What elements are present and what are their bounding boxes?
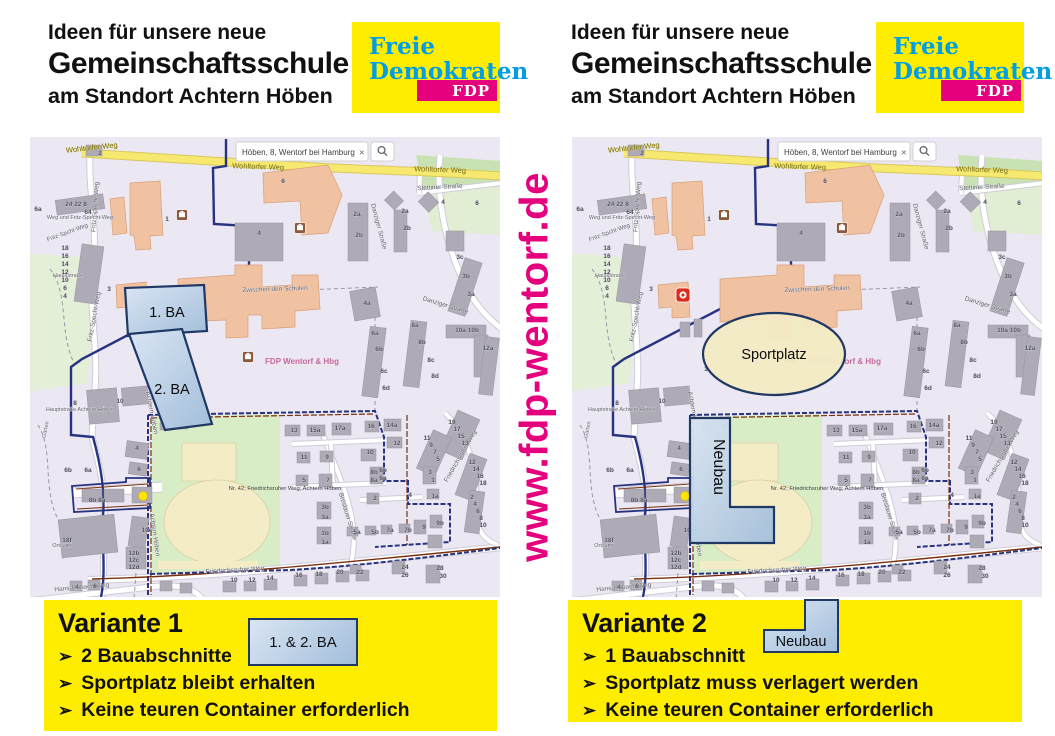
svg-text:8d: 8d	[431, 373, 439, 380]
svg-text:15: 15	[999, 433, 1007, 440]
svg-text:9: 9	[867, 454, 871, 461]
svg-text:9: 9	[971, 442, 975, 449]
svg-text:3: 3	[107, 286, 111, 293]
svg-text:6: 6	[1018, 508, 1022, 515]
svg-text:5b: 5b	[913, 529, 921, 536]
svg-text:12a: 12a	[483, 345, 494, 352]
svg-text:16: 16	[603, 253, 611, 260]
svg-text:3: 3	[970, 469, 974, 476]
website-url: www.fdp-wentorf.de	[513, 172, 558, 562]
svg-text:7: 7	[975, 449, 979, 456]
svg-text:13: 13	[832, 427, 840, 434]
svg-text:4: 4	[950, 492, 954, 499]
ba2-label: 2. BA	[154, 382, 190, 398]
svg-text:2a: 2a	[895, 211, 903, 218]
svg-text:1: 1	[431, 477, 435, 484]
svg-text:9: 9	[422, 524, 426, 531]
search-button[interactable]	[371, 142, 394, 161]
bullet-item: ➢Keine teuren Container erforderlich	[58, 697, 497, 724]
svg-text:6a: 6a	[913, 330, 921, 337]
svg-text:8a: 8a	[953, 322, 961, 329]
svg-text:1a: 1a	[321, 539, 329, 546]
svg-text:4a: 4a	[905, 300, 913, 307]
svg-text:8: 8	[615, 400, 619, 407]
svg-text:8b: 8b	[960, 339, 968, 346]
svg-text:6: 6	[823, 178, 827, 185]
svg-text:5b: 5b	[371, 529, 379, 536]
svg-text:8d: 8d	[973, 373, 981, 380]
svg-text:6: 6	[605, 285, 609, 292]
svg-text:4: 4	[257, 230, 261, 237]
svg-text:10a 10b: 10a 10b	[997, 327, 1021, 334]
svg-text:13: 13	[461, 440, 469, 447]
svg-text:Hauptstraße Achtern Höben: Hauptstraße Achtern Höben	[588, 407, 656, 413]
svg-text:6: 6	[476, 508, 480, 515]
school-icon	[837, 223, 848, 234]
variant2-box: Variante 2 ➢1 Bauabschnitt➢Sportplatz mu…	[568, 600, 1022, 722]
svg-text:10a 10b: 10a 10b	[455, 327, 479, 334]
svg-text:8a: 8a	[411, 322, 419, 329]
svg-text:19: 19	[990, 419, 998, 426]
svg-text:15a: 15a	[310, 427, 321, 434]
overlay-sportplatz: Sportplatz	[703, 313, 845, 395]
svg-text:28: 28	[978, 565, 986, 572]
svg-text:22: 22	[356, 569, 364, 576]
search-clear-icon[interactable]: ×	[901, 148, 907, 159]
svg-text:1a: 1a	[863, 539, 871, 546]
svg-text:14: 14	[603, 261, 611, 268]
svg-text:12b: 12b	[128, 550, 139, 557]
svg-text:2b: 2b	[897, 232, 905, 239]
svg-text:4: 4	[63, 293, 67, 300]
variant1-box: Variante 1 ➢2 Bauabschnitte➢Sportplatz b…	[44, 600, 497, 731]
svg-text:10: 10	[366, 449, 374, 456]
svg-text:3b: 3b	[321, 504, 329, 511]
svg-text:6: 6	[475, 200, 479, 207]
marker-dot	[139, 492, 148, 501]
svg-text:10: 10	[658, 398, 666, 405]
variant2-legend: Neubau	[762, 598, 842, 656]
svg-text:12c: 12c	[671, 557, 682, 564]
svg-text:1a: 1a	[973, 493, 981, 500]
svg-text:5a: 5a	[895, 529, 903, 536]
svg-text:4: 4	[677, 445, 681, 452]
svg-text:4: 4	[605, 293, 609, 300]
header-line2: Gemeinschaftsschule	[48, 47, 349, 81]
svg-text:6b: 6b	[606, 467, 614, 474]
bullet-arrow-icon: ➢	[58, 701, 72, 720]
svg-text:5: 5	[436, 456, 440, 463]
svg-text:6a: 6a	[84, 467, 92, 474]
overlay-ba1: 1. BA	[125, 285, 207, 336]
bullet-text: 2 Bauabschnitte	[81, 645, 232, 667]
svg-text:1a: 1a	[431, 493, 439, 500]
bullet-item: ➢Keine teuren Container erforderlich	[582, 697, 1022, 724]
svg-text:13: 13	[290, 427, 298, 434]
svg-text:4: 4	[983, 199, 987, 206]
svg-text:12: 12	[393, 440, 401, 447]
svg-text:10: 10	[230, 577, 238, 584]
poi-red-icon	[676, 288, 690, 302]
svg-text:8a: 8a	[912, 477, 920, 484]
svg-text:6: 6	[1017, 200, 1021, 207]
school-icon	[177, 210, 188, 221]
svg-text:18: 18	[857, 571, 865, 578]
svg-text:2a: 2a	[943, 208, 951, 215]
svg-text:2: 2	[373, 495, 377, 502]
svg-text:12d: 12d	[128, 564, 139, 571]
svg-text:12: 12	[603, 269, 611, 276]
svg-text:18: 18	[479, 480, 487, 487]
svg-text:18f: 18f	[62, 537, 72, 544]
svg-text:5a: 5a	[353, 529, 361, 536]
svg-text:4: 4	[473, 501, 477, 508]
svg-text:64: 64	[626, 209, 634, 216]
svg-text:18: 18	[603, 245, 611, 252]
svg-text:6c: 6c	[380, 368, 388, 375]
svg-text:26: 26	[401, 572, 409, 579]
svg-text:6a: 6a	[379, 475, 387, 482]
svg-text:12: 12	[790, 577, 798, 584]
svg-text:6c: 6c	[922, 368, 930, 375]
svg-text:4: 4	[1015, 501, 1019, 508]
svg-text:6b: 6b	[379, 467, 387, 474]
svg-text:3c: 3c	[456, 254, 464, 261]
svg-text:Wohltorfer Weg: Wohltorfer Weg	[232, 161, 284, 172]
map-variant-2: Wohltorfer WegWohltorfer WegWohltorfer W…	[572, 137, 1042, 597]
map-variant-1: Wohltorfer WegWohltorfer WegWohltorfer W…	[30, 137, 500, 597]
school-icon	[295, 223, 306, 234]
bullet-text: Keine teuren Container erforderlich	[81, 699, 409, 721]
svg-text:9: 9	[964, 524, 968, 531]
variant1-legend: 1. & 2. BA	[248, 618, 358, 666]
svg-text:Nr. 42; Friedrichsruher Weg; A: Nr. 42; Friedrichsruher Weg; Achtern Höb…	[771, 486, 884, 492]
fdp-badge: FDP	[941, 80, 1021, 101]
svg-text:7a: 7a	[928, 527, 936, 534]
svg-text:FDP Wentorf & Hbg: FDP Wentorf & Hbg	[265, 357, 339, 366]
svg-text:18: 18	[61, 245, 69, 252]
svg-text:6a: 6a	[371, 330, 379, 337]
svg-text:6: 6	[137, 466, 141, 473]
svg-text:4: 4	[408, 492, 412, 499]
svg-text:6a: 6a	[576, 206, 584, 213]
svg-text:2: 2	[98, 150, 102, 157]
svg-text:16: 16	[61, 253, 69, 260]
svg-text:4: 4	[135, 445, 139, 452]
svg-text:7: 7	[326, 477, 330, 484]
svg-text:2a: 2a	[353, 211, 361, 218]
bullet-item: ➢Sportplatz muss verlagert werden	[582, 670, 1022, 697]
svg-text:10: 10	[772, 577, 780, 584]
svg-text:3b: 3b	[863, 504, 871, 511]
svg-text:15a: 15a	[852, 427, 863, 434]
search-value: Höben, 8, Wentorf bei Hamburg	[242, 148, 355, 157]
svg-text:12a: 12a	[1025, 345, 1036, 352]
svg-text:16: 16	[367, 423, 375, 430]
fdp-logo-wordmark: Freie Demokraten	[893, 34, 1052, 84]
svg-text:3a: 3a	[1009, 291, 1017, 298]
svg-text:17a: 17a	[877, 425, 888, 432]
svg-text:5: 5	[844, 477, 848, 484]
svg-text:7: 7	[868, 477, 872, 484]
svg-text:10: 10	[908, 449, 916, 456]
svg-text:8c: 8c	[427, 357, 435, 364]
svg-text:18f: 18f	[604, 537, 614, 544]
svg-text:7b: 7b	[404, 527, 412, 534]
website-vertical: www.fdp-wentorf.de	[501, 137, 569, 597]
svg-text:10: 10	[116, 398, 124, 405]
svg-text:12: 12	[61, 269, 69, 276]
svg-text:24: 24	[943, 564, 951, 571]
fdp-badge: FDP	[417, 80, 497, 101]
bullet-arrow-icon: ➢	[582, 647, 596, 666]
svg-text:16: 16	[909, 423, 917, 430]
svg-text:12c: 12c	[129, 557, 140, 564]
flyer-page: Ideen für unsere neue Gemeinschaftsschul…	[0, 0, 1055, 736]
svg-text:6a: 6a	[921, 475, 929, 482]
svg-text:8: 8	[73, 400, 77, 407]
svg-text:4: 4	[75, 584, 79, 591]
svg-text:Weg und Fritz-Specht-Weg: Weg und Fritz-Specht-Weg	[589, 215, 655, 221]
svg-text:3: 3	[428, 469, 432, 476]
bullet-arrow-icon: ➢	[58, 674, 72, 693]
map-svg: Wohltorfer WegWohltorfer WegWohltorfer W…	[572, 137, 1042, 597]
svg-text:26: 26	[943, 572, 951, 579]
svg-text:6a: 6a	[626, 467, 634, 474]
svg-text:16: 16	[476, 473, 484, 480]
fdp-logo-wordmark: Freie Demokraten	[369, 34, 528, 84]
map-svg: Wohltorfer WegWohltorfer WegWohltorfer W…	[30, 137, 500, 597]
svg-text:Wohltorfer Weg: Wohltorfer Weg	[774, 161, 826, 172]
map-watermark: FDP Wentorf & Hbg	[265, 357, 339, 366]
svg-text:14: 14	[61, 261, 69, 268]
marker-dot	[681, 492, 690, 501]
svg-text:6b: 6b	[921, 467, 929, 474]
svg-text:12: 12	[468, 459, 476, 466]
fdp-logo: Freie Demokraten FDP	[352, 22, 500, 113]
svg-text:6: 6	[679, 466, 683, 473]
svg-text:64: 64	[84, 209, 92, 216]
svg-text:Wohltorfer Weg: Wohltorfer Weg	[414, 164, 466, 175]
svg-text:3a: 3a	[467, 291, 475, 298]
svg-text:6a: 6a	[34, 206, 42, 213]
neubau-label: Neubau	[710, 439, 727, 495]
header-line3: am Standort Achtern Höben	[48, 81, 349, 111]
header-right: Ideen für unsere neue Gemeinschaftsschul…	[571, 18, 872, 111]
svg-text:20: 20	[878, 569, 886, 576]
svg-text:3b: 3b	[1004, 273, 1012, 280]
svg-text:20: 20	[336, 569, 344, 576]
bullet-arrow-icon: ➢	[582, 674, 596, 693]
svg-text:2b: 2b	[355, 232, 363, 239]
svg-text:14: 14	[808, 575, 816, 582]
svg-text:3: 3	[649, 286, 653, 293]
svg-text:9: 9	[429, 442, 433, 449]
svg-text:6: 6	[63, 285, 67, 292]
bullet-text: 1 Bauabschnitt	[605, 645, 745, 667]
svg-text:10: 10	[479, 522, 487, 529]
svg-text:6: 6	[93, 583, 97, 590]
svg-text:6b: 6b	[375, 346, 383, 353]
svg-text:14: 14	[1014, 466, 1022, 473]
svg-text:9: 9	[325, 454, 329, 461]
svg-text:2: 2	[470, 494, 474, 501]
neubau-legend-label: Neubau	[776, 634, 827, 650]
svg-text:30: 30	[981, 573, 989, 580]
svg-text:1: 1	[165, 216, 169, 223]
svg-text:3a: 3a	[863, 514, 871, 521]
svg-text:10: 10	[1021, 522, 1029, 529]
fdp-logo-2: Freie Demokraten FDP	[876, 22, 1024, 113]
svg-text:11: 11	[966, 435, 973, 442]
svg-text:12: 12	[935, 440, 943, 447]
svg-text:14a: 14a	[387, 422, 398, 429]
svg-text:8: 8	[1021, 515, 1025, 522]
svg-text:2: 2	[640, 150, 644, 157]
school-icon	[719, 210, 730, 221]
search-button[interactable]	[913, 142, 936, 161]
svg-text:12d: 12d	[670, 564, 681, 571]
svg-text:9b: 9b	[978, 520, 986, 527]
svg-text:18: 18	[1021, 480, 1029, 487]
svg-text:1b: 1b	[863, 530, 871, 537]
school-icon	[243, 352, 254, 363]
svg-text:6: 6	[281, 178, 285, 185]
svg-text:4a: 4a	[363, 300, 371, 307]
svg-text:14: 14	[266, 575, 274, 582]
svg-text:10: 10	[603, 277, 611, 284]
svg-text:7b: 7b	[946, 527, 954, 534]
svg-text:8b: 8b	[912, 469, 920, 476]
svg-text:8: 8	[479, 515, 483, 522]
svg-text:7a: 7a	[386, 527, 394, 534]
svg-text:28: 28	[436, 565, 444, 572]
search-value: Höben, 8, Wentorf bei Hamburg	[784, 148, 897, 157]
svg-text:2b: 2b	[403, 225, 411, 232]
svg-text:12: 12	[248, 577, 256, 584]
svg-text:8b 8a: 8b 8a	[631, 497, 648, 504]
svg-text:24 22 8: 24 22 8	[65, 201, 87, 208]
ba1-label: 1. BA	[149, 305, 185, 321]
svg-text:16: 16	[295, 572, 303, 579]
bullet-text: Sportplatz bleibt erhalten	[81, 672, 315, 694]
svg-text:8a: 8a	[370, 477, 378, 484]
svg-text:8b: 8b	[370, 469, 378, 476]
svg-text:22: 22	[898, 569, 906, 576]
svg-text:17: 17	[453, 426, 461, 433]
svg-text:14: 14	[472, 466, 480, 473]
svg-text:4: 4	[441, 199, 445, 206]
svg-text:24 22 8: 24 22 8	[607, 201, 629, 208]
svg-text:17a: 17a	[335, 425, 346, 432]
svg-text:8b 8a: 8b 8a	[89, 497, 106, 504]
svg-text:13: 13	[1003, 440, 1011, 447]
bullet-arrow-icon: ➢	[58, 647, 72, 666]
svg-text:3a: 3a	[321, 514, 329, 521]
svg-text:30: 30	[439, 573, 447, 580]
svg-text:5: 5	[302, 477, 306, 484]
svg-text:8b: 8b	[418, 339, 426, 346]
svg-text:12: 12	[1010, 459, 1018, 466]
bullet-arrow-icon: ➢	[582, 701, 596, 720]
svg-text:18: 18	[315, 571, 323, 578]
svg-text:Hauptstraße Achtern Höben: Hauptstraße Achtern Höben	[46, 407, 114, 413]
sportplatz-label: Sportplatz	[741, 347, 806, 363]
svg-text:10: 10	[61, 277, 69, 284]
svg-text:17: 17	[995, 426, 1003, 433]
svg-text:9b: 9b	[436, 520, 444, 527]
svg-text:10c: 10c	[142, 527, 153, 534]
bullet-text: Sportplatz muss verlagert werden	[605, 672, 918, 694]
svg-text:2: 2	[1012, 494, 1016, 501]
svg-text:7: 7	[433, 449, 437, 456]
bullet-text: Keine teuren Container erforderlich	[605, 699, 933, 721]
search-clear-icon[interactable]: ×	[359, 148, 365, 159]
svg-text:14a: 14a	[929, 422, 940, 429]
svg-text:1: 1	[707, 216, 711, 223]
svg-text:24: 24	[401, 564, 409, 571]
svg-text:1b: 1b	[321, 530, 329, 537]
svg-text:19: 19	[448, 419, 456, 426]
svg-text:Weg und Fritz-Specht-Weg: Weg und Fritz-Specht-Weg	[47, 215, 113, 221]
svg-text:8c: 8c	[969, 357, 977, 364]
svg-text:12b: 12b	[670, 550, 681, 557]
svg-text:11: 11	[843, 454, 850, 461]
svg-text:16: 16	[1018, 473, 1026, 480]
svg-text:15: 15	[457, 433, 465, 440]
svg-text:16: 16	[837, 572, 845, 579]
svg-text:6d: 6d	[382, 385, 390, 392]
svg-text:11: 11	[424, 435, 431, 442]
svg-text:6b: 6b	[917, 346, 925, 353]
svg-text:3c: 3c	[998, 254, 1006, 261]
svg-text:Wohltorfer Weg: Wohltorfer Weg	[956, 164, 1008, 175]
svg-text:6: 6	[635, 583, 639, 590]
svg-text:4: 4	[799, 230, 803, 237]
svg-text:1: 1	[973, 477, 977, 484]
svg-text:4: 4	[617, 584, 621, 591]
svg-text:2: 2	[915, 495, 919, 502]
svg-text:11: 11	[301, 454, 308, 461]
header-line1: Ideen für unsere neue	[48, 18, 349, 47]
svg-text:6b: 6b	[64, 467, 72, 474]
svg-text:5: 5	[978, 456, 982, 463]
svg-text:2a: 2a	[401, 208, 409, 215]
svg-text:Nr. 42; Friedrichsruher Weg; A: Nr. 42; Friedrichsruher Weg; Achtern Höb…	[229, 486, 342, 492]
svg-text:6d: 6d	[924, 385, 932, 392]
bullet-item: ➢Sportplatz bleibt erhalten	[58, 670, 497, 697]
header-left: Ideen für unsere neue Gemeinschaftsschul…	[48, 18, 349, 111]
svg-text:3b: 3b	[462, 273, 470, 280]
svg-text:2b: 2b	[945, 225, 953, 232]
